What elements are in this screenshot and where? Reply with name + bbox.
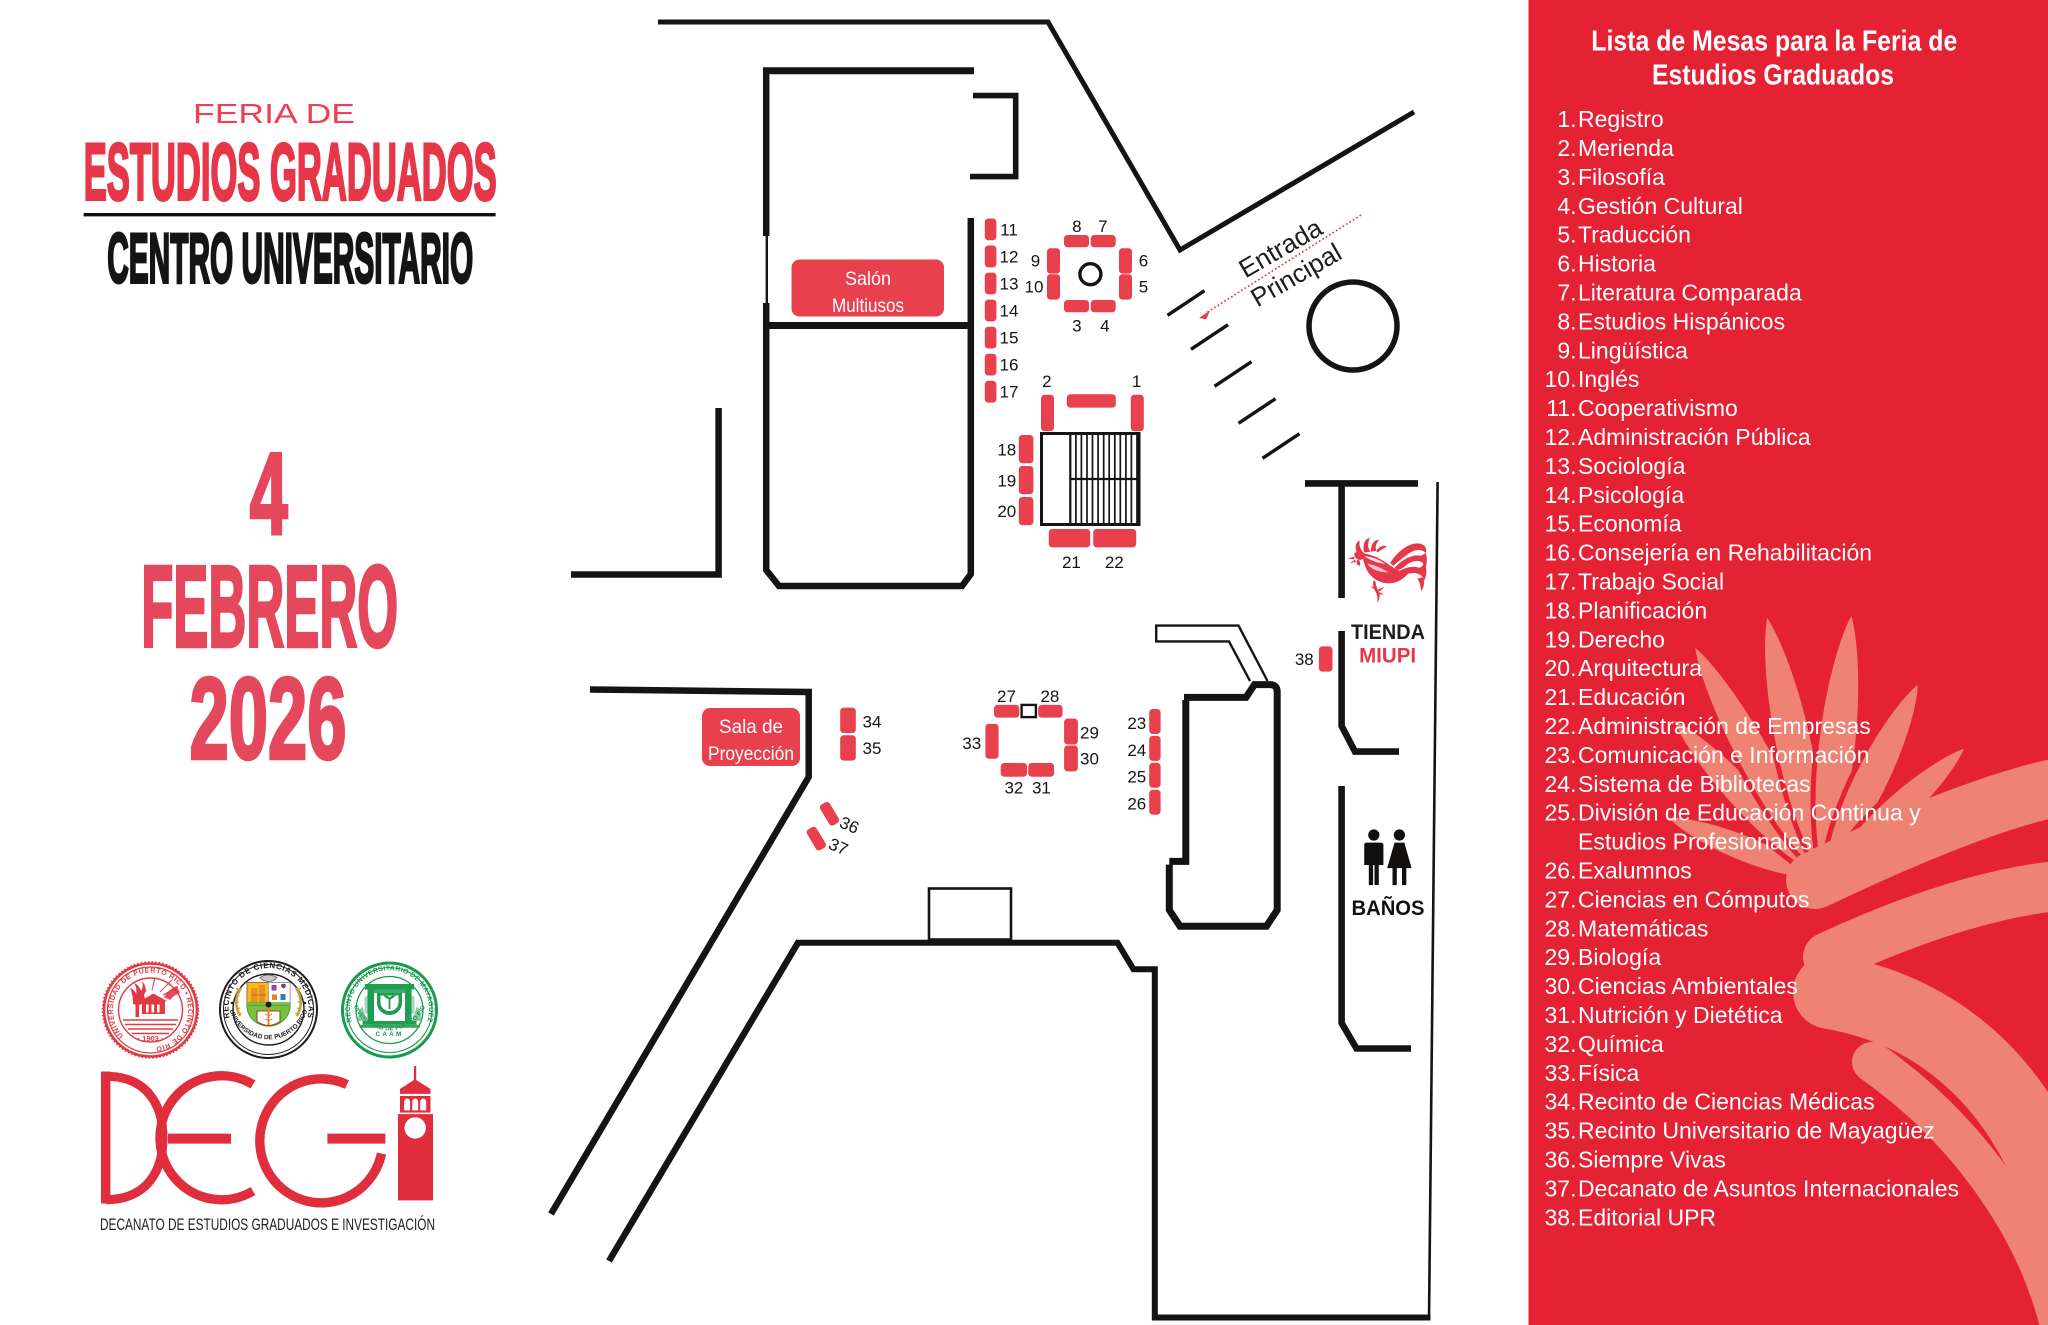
svg-text:20.: 20. — [1545, 655, 1577, 681]
svg-text:Sistema de Bibliotecas: Sistema de Bibliotecas — [1578, 771, 1811, 797]
svg-text:Derecho: Derecho — [1578, 626, 1665, 652]
svg-text:2.: 2. — [1557, 135, 1576, 161]
svg-text:Psicología: Psicología — [1578, 482, 1684, 508]
svg-text:Lingüística: Lingüística — [1578, 337, 1688, 363]
svg-text:24: 24 — [1127, 741, 1146, 760]
svg-text:26.: 26. — [1545, 858, 1577, 884]
svg-text:19: 19 — [997, 471, 1016, 490]
svg-text:15.: 15. — [1545, 511, 1577, 537]
svg-text:CAAM: CAAM — [376, 1031, 404, 1038]
svg-text:14.: 14. — [1545, 482, 1577, 508]
svg-text:ESTUDIOS GRADUADOS: ESTUDIOS GRADUADOS — [84, 128, 497, 218]
svg-text:4.: 4. — [1557, 193, 1576, 219]
svg-text:Estudios Profesionales: Estudios Profesionales — [1578, 829, 1812, 855]
svg-text:Educación: Educación — [1578, 684, 1685, 710]
svg-text:25: 25 — [1127, 768, 1146, 787]
svg-text:18.: 18. — [1545, 597, 1577, 623]
svg-text:32: 32 — [1004, 778, 1023, 797]
svg-text:32.: 32. — [1545, 1031, 1577, 1057]
svg-text:Física: Física — [1578, 1060, 1640, 1086]
svg-text:Ciencias en Cómputos: Ciencias en Cómputos — [1578, 886, 1809, 912]
svg-text:26: 26 — [1127, 794, 1146, 813]
svg-text:27.: 27. — [1545, 886, 1577, 912]
svg-text:Administración Pública: Administración Pública — [1578, 424, 1811, 450]
svg-text:Economía: Economía — [1578, 511, 1682, 537]
svg-text:36.: 36. — [1545, 1147, 1577, 1173]
svg-text:Cooperativismo: Cooperativismo — [1578, 395, 1738, 421]
svg-text:TIENDA: TIENDA — [1351, 620, 1425, 644]
svg-text:Consejería en Rehabilitación: Consejería en Rehabilitación — [1578, 540, 1872, 566]
svg-text:30: 30 — [1080, 749, 1099, 768]
svg-text:38.: 38. — [1545, 1204, 1577, 1230]
svg-text:29: 29 — [1080, 723, 1099, 742]
svg-text:Editorial UPR: Editorial UPR — [1578, 1204, 1716, 1230]
svg-text:1.: 1. — [1557, 106, 1576, 132]
svg-text:3.: 3. — [1557, 164, 1576, 190]
svg-text:Decanato de Asuntos Internacio: Decanato de Asuntos Internacionales — [1578, 1175, 1959, 1201]
svg-text:33.: 33. — [1545, 1060, 1577, 1086]
svg-text:Traducción: Traducción — [1578, 222, 1691, 248]
svg-text:16: 16 — [1000, 356, 1019, 375]
svg-text:25.: 25. — [1545, 800, 1577, 826]
svg-text:9: 9 — [1031, 251, 1040, 270]
svg-text:Literatura Comparada: Literatura Comparada — [1578, 280, 1802, 306]
svg-text:Nutrición y Dietética: Nutrición y Dietética — [1578, 1002, 1783, 1028]
svg-text:6: 6 — [1139, 251, 1148, 270]
svg-text:38: 38 — [1295, 650, 1314, 669]
svg-text:8.: 8. — [1557, 308, 1576, 334]
svg-text:FEBRERO: FEBRERO — [141, 542, 398, 672]
svg-text:Trabajo Social: Trabajo Social — [1578, 569, 1724, 595]
svg-text:23.: 23. — [1545, 742, 1577, 768]
svg-text:Salón: Salón — [845, 268, 891, 290]
svg-text:5.: 5. — [1557, 222, 1576, 248]
svg-text:4: 4 — [250, 429, 288, 559]
svg-text:Inglés: Inglés — [1578, 366, 1639, 392]
svg-text:Registro: Registro — [1578, 106, 1664, 132]
svg-text:Arquitectura: Arquitectura — [1578, 655, 1702, 681]
svg-text:Administración de Empresas: Administración de Empresas — [1578, 713, 1871, 739]
svg-text:Matemáticas: Matemáticas — [1578, 915, 1708, 941]
svg-text:30.: 30. — [1545, 973, 1577, 999]
svg-text:6.: 6. — [1557, 251, 1576, 277]
svg-text:10.: 10. — [1545, 366, 1577, 392]
svg-text:12.: 12. — [1545, 424, 1577, 450]
svg-text:Recinto de Ciencias Médicas: Recinto de Ciencias Médicas — [1578, 1089, 1875, 1115]
svg-text:1: 1 — [1132, 372, 1141, 391]
svg-text:DECANATO DE ESTUDIOS GRADUADOS: DECANATO DE ESTUDIOS GRADUADOS E INVESTI… — [100, 1215, 435, 1234]
svg-text:31.: 31. — [1545, 1002, 1577, 1028]
svg-text:13.: 13. — [1545, 453, 1577, 479]
svg-text:Ciencias Ambientales: Ciencias Ambientales — [1578, 973, 1798, 999]
svg-text:24.: 24. — [1545, 771, 1577, 797]
svg-text:33: 33 — [962, 734, 981, 753]
svg-text:2: 2 — [1042, 372, 1051, 391]
svg-text:Lista de Mesas para la Feria d: Lista de Mesas para la Feria de — [1591, 26, 1957, 58]
svg-text:29.: 29. — [1545, 944, 1577, 970]
svg-text:2026: 2026 — [190, 654, 347, 784]
svg-text:CENTRO UNIVERSITARIO: CENTRO UNIVERSITARIO — [107, 219, 473, 298]
svg-text:21.: 21. — [1545, 684, 1577, 710]
svg-text:· 1903 ·: · 1903 · — [138, 1034, 164, 1043]
svg-text:Comunicación e Información: Comunicación e Información — [1578, 742, 1869, 768]
svg-text:FERIA DE: FERIA DE — [193, 98, 355, 129]
svg-text:5: 5 — [1139, 278, 1148, 297]
svg-text:Exalumnos: Exalumnos — [1578, 858, 1692, 884]
svg-text:13: 13 — [1000, 274, 1019, 293]
svg-text:7.: 7. — [1557, 280, 1576, 306]
svg-text:11.: 11. — [1546, 395, 1576, 421]
svg-text:Biología: Biología — [1578, 944, 1661, 970]
svg-text:28.: 28. — [1545, 915, 1577, 941]
svg-text:8: 8 — [1072, 217, 1081, 236]
svg-text:22: 22 — [1105, 553, 1124, 572]
svg-text:Multiusos: Multiusos — [832, 295, 904, 317]
svg-text:27: 27 — [997, 687, 1016, 706]
svg-text:BAÑOS: BAÑOS — [1352, 895, 1425, 920]
svg-text:3: 3 — [1072, 316, 1081, 335]
svg-text:Química: Química — [1578, 1031, 1664, 1057]
svg-text:34: 34 — [863, 712, 882, 731]
svg-text:19.: 19. — [1545, 626, 1577, 652]
svg-text:11: 11 — [1000, 220, 1018, 239]
svg-text:35: 35 — [863, 739, 882, 758]
svg-text:Merienda: Merienda — [1578, 135, 1674, 161]
svg-text:Siempre Vivas: Siempre Vivas — [1578, 1147, 1726, 1173]
svg-text:18: 18 — [997, 440, 1016, 459]
svg-text:16.: 16. — [1545, 540, 1577, 566]
svg-text:4: 4 — [1100, 316, 1109, 335]
svg-text:35.: 35. — [1545, 1118, 1577, 1144]
svg-text:Historia: Historia — [1578, 251, 1656, 277]
svg-text:Planificación: Planificación — [1578, 597, 1707, 623]
svg-text:Gestión Cultural: Gestión Cultural — [1578, 193, 1743, 219]
svg-text:Estudios Graduados: Estudios Graduados — [1652, 59, 1894, 91]
svg-text:15: 15 — [1000, 329, 1019, 348]
svg-text:Sociología: Sociología — [1578, 453, 1686, 479]
svg-text:División de Educación Continua: División de Educación Continua y — [1578, 800, 1921, 826]
svg-text:7: 7 — [1098, 217, 1107, 236]
svg-text:MIUPI: MIUPI — [1359, 644, 1416, 668]
svg-text:17.: 17. — [1545, 569, 1577, 595]
svg-text:14: 14 — [1000, 302, 1019, 321]
svg-text:20: 20 — [997, 502, 1016, 521]
svg-text:Proyección: Proyección — [708, 743, 794, 765]
svg-text:17: 17 — [1000, 383, 1019, 402]
svg-text:Recinto Universitario de Mayag: Recinto Universitario de Mayagüez — [1578, 1118, 1935, 1144]
svg-text:34.: 34. — [1545, 1089, 1577, 1115]
svg-text:28: 28 — [1040, 687, 1059, 706]
svg-text:37.: 37. — [1545, 1175, 1577, 1201]
svg-text:Sala de: Sala de — [719, 716, 783, 738]
svg-text:Estudios Hispánicos: Estudios Hispánicos — [1578, 308, 1785, 334]
svg-text:21: 21 — [1062, 553, 1081, 572]
svg-text:23: 23 — [1127, 714, 1146, 733]
svg-text:9.: 9. — [1557, 337, 1576, 363]
svg-text:22.: 22. — [1545, 713, 1577, 739]
svg-text:10: 10 — [1025, 277, 1044, 296]
svg-text:Filosofía: Filosofía — [1578, 164, 1665, 190]
svg-text:31: 31 — [1032, 778, 1051, 797]
svg-text:12: 12 — [1000, 247, 1019, 266]
